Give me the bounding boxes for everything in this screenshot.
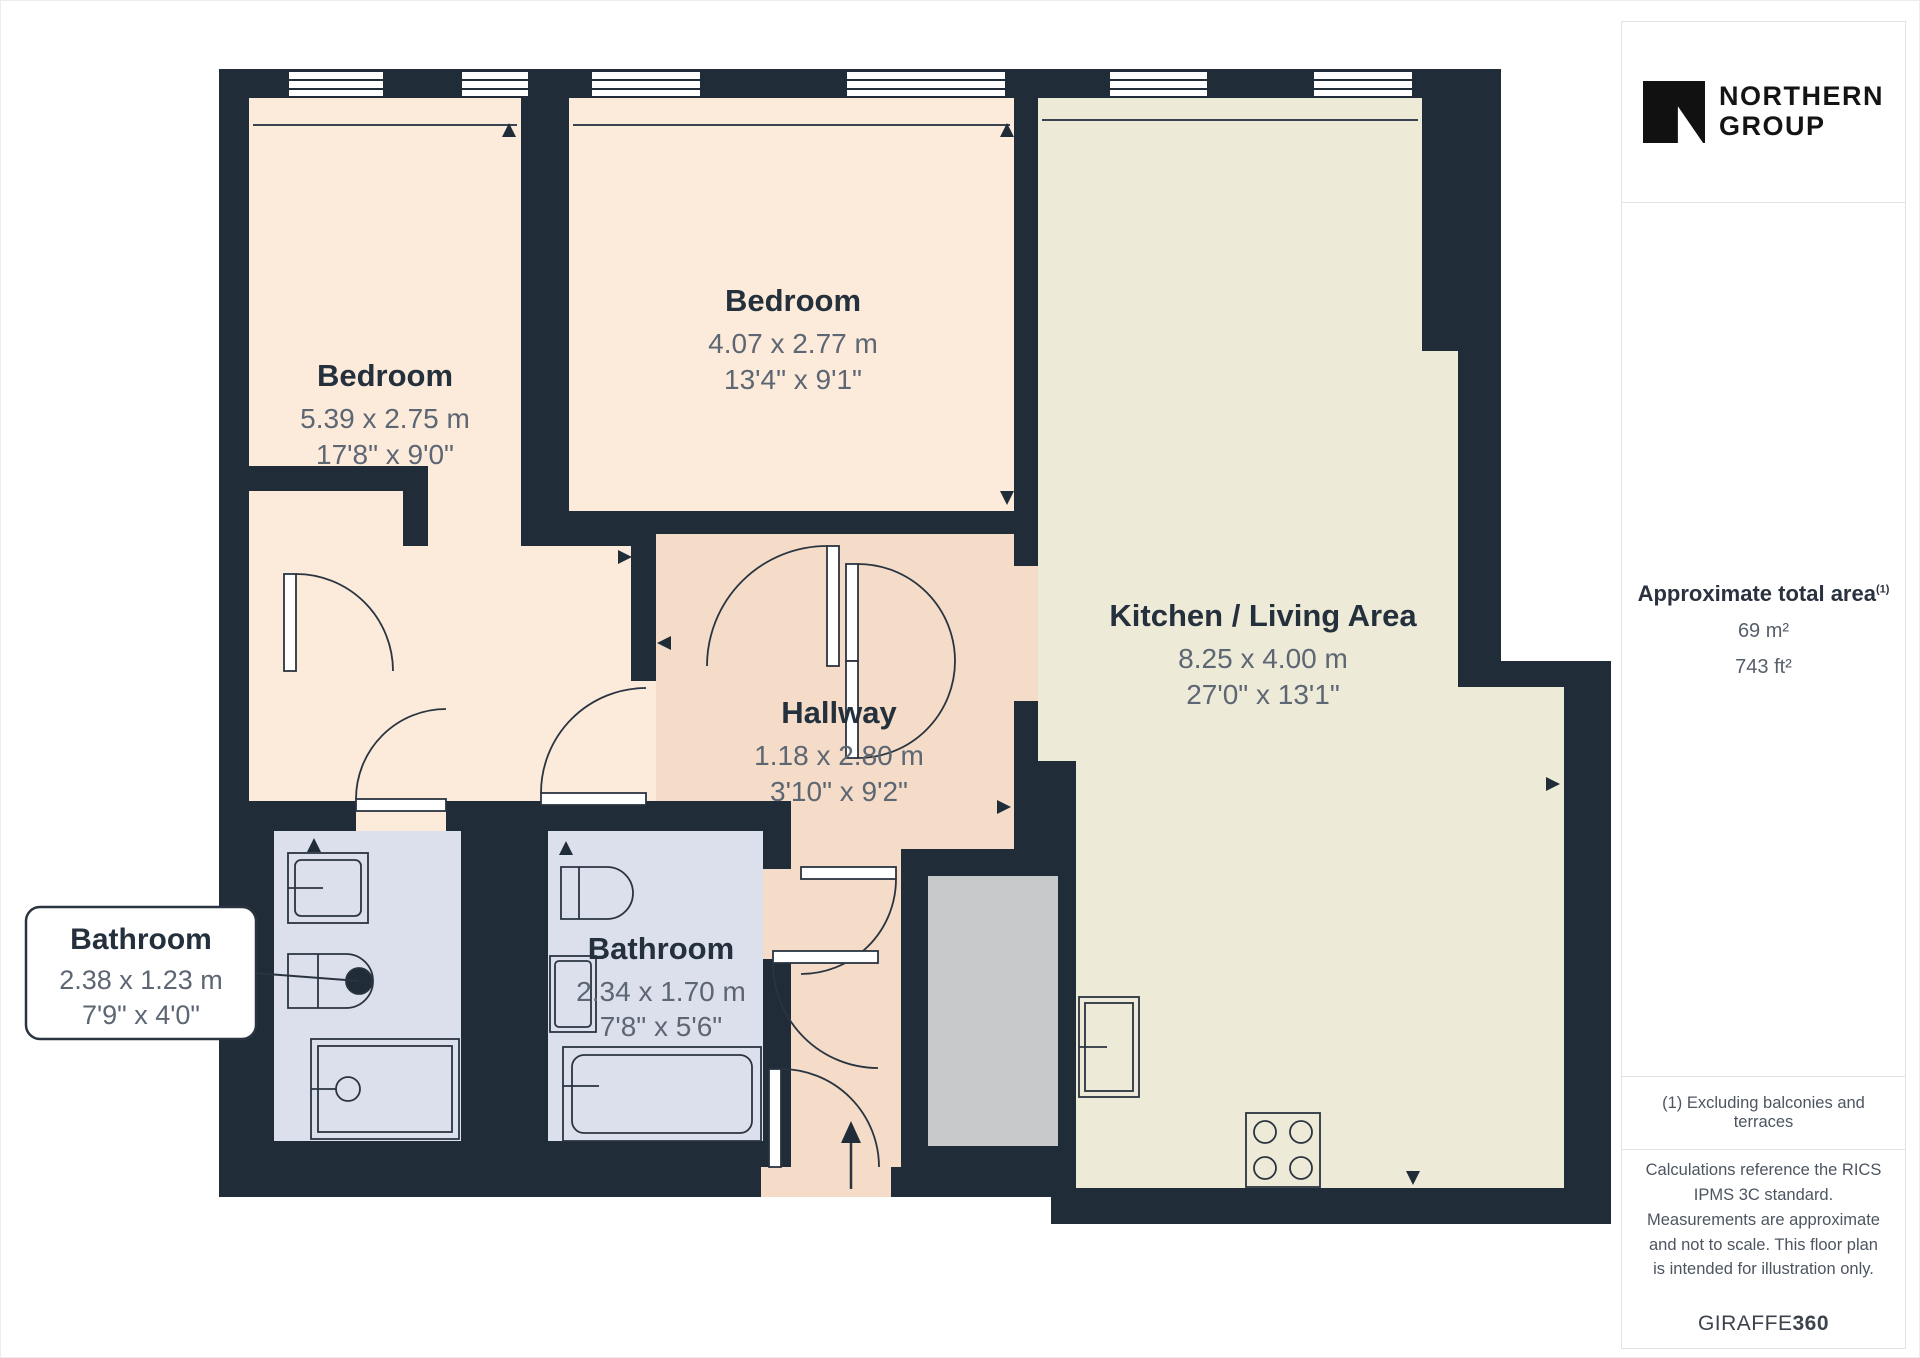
hallway-floor-b xyxy=(791,801,1014,849)
bathroom-1-imperial: 7'9" x 4'0" xyxy=(82,1000,200,1030)
kitchen-floor-a xyxy=(1038,98,1422,351)
floorplan-drawing: Bathroom 2.38 x 1.23 m 7'9" x 4'0" Bedro… xyxy=(1,1,1611,1358)
disclaimer-section: Calculations reference the RICS IPMS 3C … xyxy=(1622,1150,1905,1348)
total-area-title-text: Approximate total area xyxy=(1638,581,1876,606)
bedroom-2-imperial: 13'4" x 9'1" xyxy=(724,364,862,395)
bedroom-1-imperial: 17'8" x 9'0" xyxy=(316,439,454,470)
brand-name-line1: NORTHERN xyxy=(1719,82,1884,112)
bedroom-2-metric: 4.07 x 2.77 m xyxy=(708,328,878,359)
kitchen-imperial: 27'0" x 13'1" xyxy=(1186,679,1340,710)
footnote-excluding: (1) Excluding balconies and terraces xyxy=(1622,1076,1905,1150)
window xyxy=(846,71,1006,97)
total-area-section: Approximate total area(1) 69 m² 743 ft² xyxy=(1622,203,1905,1076)
window xyxy=(1109,71,1208,97)
bathroom-1-label: Bathroom xyxy=(70,923,212,956)
disclaimer-text: Calculations reference the RICS IPMS 3C … xyxy=(1644,1158,1883,1282)
giraffe360-credit-regular: GIRAFFE xyxy=(1698,1312,1793,1335)
kitchen-metric: 8.25 x 4.00 m xyxy=(1178,643,1348,674)
bedroom-1-label: Bedroom xyxy=(317,358,453,393)
giraffe360-credit-bold: 360 xyxy=(1792,1312,1829,1335)
total-area-footnote-marker: (1) xyxy=(1876,584,1889,596)
info-panel: NORTHERN GROUP Approximate total area(1)… xyxy=(1621,21,1906,1349)
kitchen-label: Kitchen / Living Area xyxy=(1109,598,1417,633)
entrance-gap xyxy=(761,1167,891,1197)
window xyxy=(591,71,701,97)
hallway-imperial: 3'10" x 9'2" xyxy=(770,776,908,807)
northern-group-logo-icon xyxy=(1643,81,1705,143)
kitchen-door-gap xyxy=(1014,566,1038,701)
window xyxy=(461,71,529,97)
brand-name: NORTHERN GROUP xyxy=(1719,82,1884,141)
total-area-m2: 69 m² xyxy=(1622,620,1905,643)
floorplan-page: Bathroom 2.38 x 1.23 m 7'9" x 4'0" Bedro… xyxy=(0,0,1920,1358)
bathroom-2-door-gap xyxy=(763,869,791,959)
utility-floor xyxy=(928,876,1058,1146)
bedroom-2-label: Bedroom xyxy=(725,283,861,318)
hallway-floor-c xyxy=(791,849,901,1167)
bathroom-2-metric: 2.34 x 1.70 m xyxy=(576,976,746,1007)
hallway-metric: 1.18 x 2.80 m xyxy=(754,740,924,771)
window xyxy=(1313,71,1413,97)
window xyxy=(288,71,384,97)
giraffe360-credit: GIRAFFE360 xyxy=(1698,1308,1829,1340)
total-area-ft2: 743 ft² xyxy=(1622,656,1905,679)
bathroom-2-label: Bathroom xyxy=(588,931,734,966)
total-area-title: Approximate total area(1) xyxy=(1622,581,1905,607)
bedroom-1-metric: 5.39 x 2.75 m xyxy=(300,403,470,434)
kitchen-floor-b xyxy=(1038,351,1458,687)
bathroom-1-metric: 2.38 x 1.23 m xyxy=(59,965,223,995)
hallway-label: Hallway xyxy=(781,695,897,730)
brand-header: NORTHERN GROUP xyxy=(1622,22,1905,203)
brand-name-line2: GROUP xyxy=(1719,112,1884,142)
bathroom-2-imperial: 7'8" x 5'6" xyxy=(600,1011,722,1042)
